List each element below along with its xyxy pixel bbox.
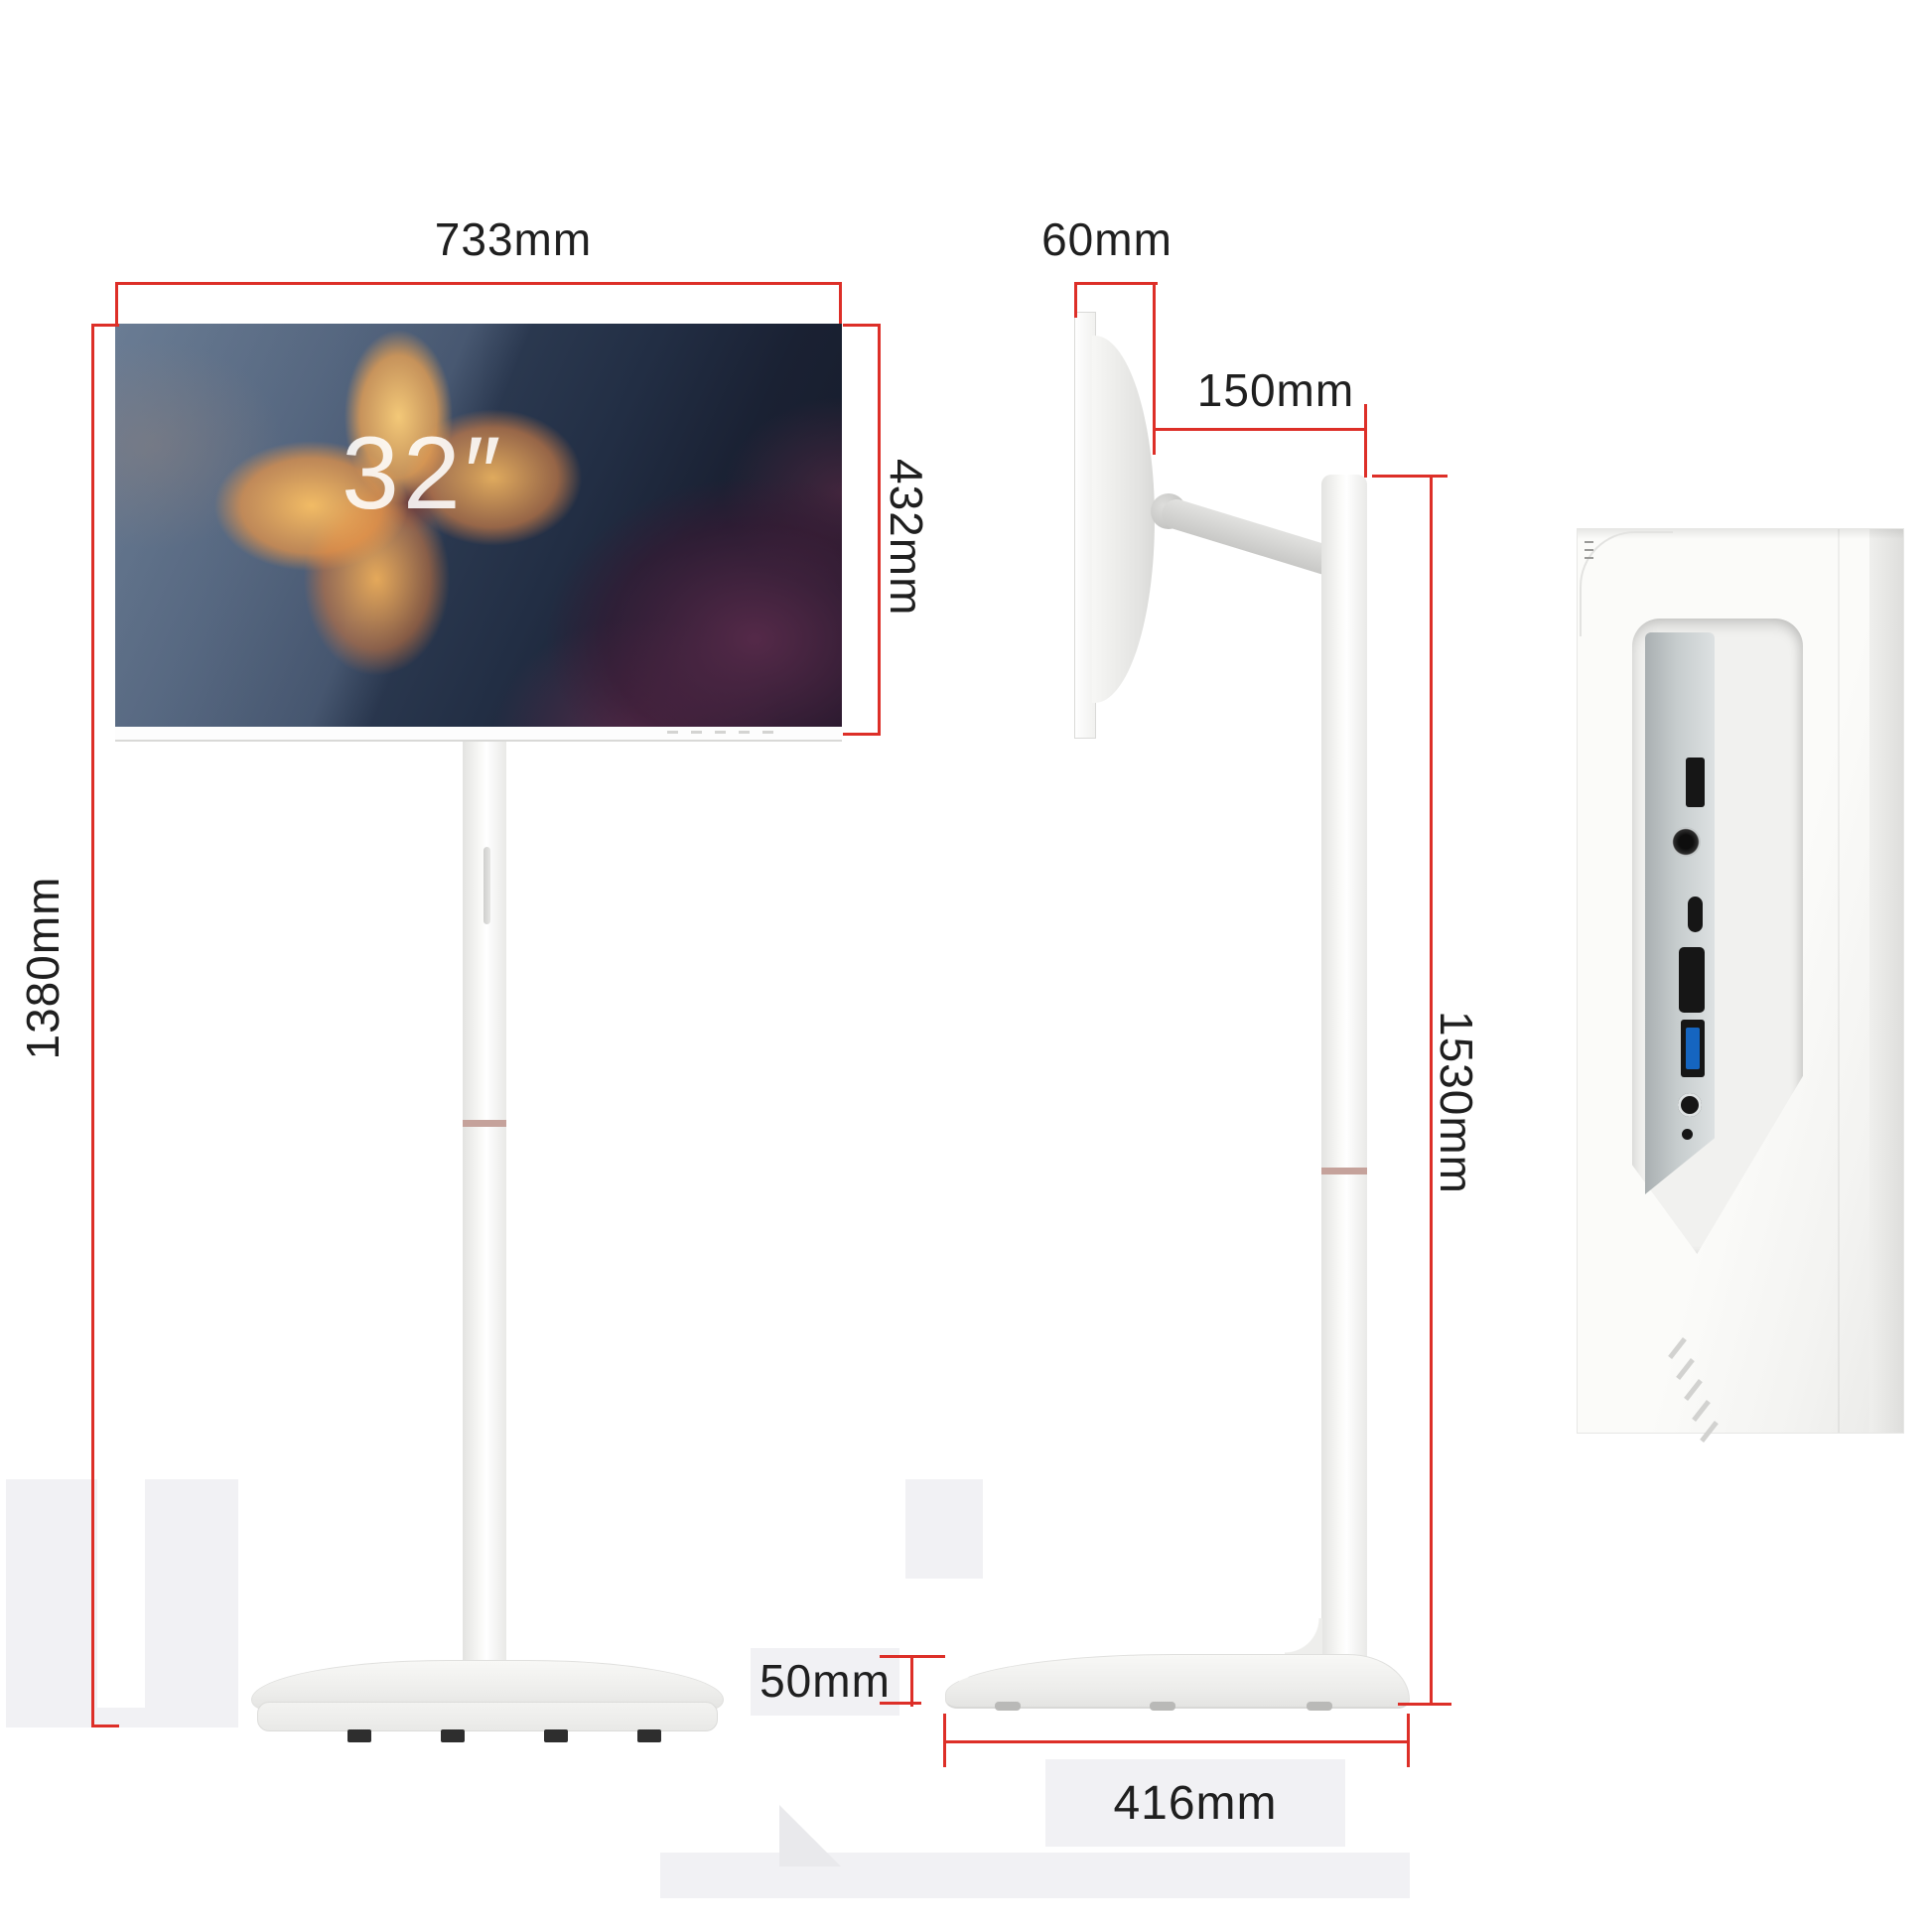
dim-stand-height-line bbox=[1430, 475, 1433, 1706]
background-patch-triangle bbox=[779, 1805, 841, 1866]
dim-front-total-height-label: 1380mm bbox=[16, 839, 68, 1097]
background-patch-notch bbox=[97, 1479, 145, 1708]
background-patch bbox=[660, 1853, 1410, 1898]
dim-base-depth-line bbox=[943, 1740, 1410, 1743]
dim-front-screen-height-line bbox=[878, 324, 881, 736]
dim-tick bbox=[91, 1725, 119, 1727]
reset-hole bbox=[1682, 1129, 1693, 1140]
rear-port-panel-photo bbox=[1577, 528, 1904, 1434]
vent-slot bbox=[1668, 1337, 1687, 1359]
usb-port bbox=[1686, 758, 1705, 807]
usb-c-port bbox=[1688, 897, 1703, 932]
panel-side-edge bbox=[1869, 529, 1903, 1433]
dim-stand-height-label: 1530mm bbox=[1432, 986, 1483, 1219]
vent-slot bbox=[1684, 1379, 1703, 1401]
dim-tick bbox=[880, 1702, 921, 1705]
front-base-foot bbox=[347, 1729, 371, 1742]
dim-side-depth-line bbox=[1074, 282, 1158, 285]
dim-tick bbox=[115, 282, 118, 324]
side-screen-back bbox=[1092, 336, 1155, 703]
side-base bbox=[945, 1654, 1410, 1709]
dim-tick bbox=[91, 324, 119, 327]
dim-front-total-height-line bbox=[91, 324, 94, 1727]
dim-tick bbox=[1074, 282, 1077, 318]
dim-tick bbox=[1372, 475, 1448, 478]
vent-slot bbox=[1692, 1400, 1711, 1422]
dim-side-depth-label: 60mm bbox=[1008, 212, 1206, 266]
panel-label-mark bbox=[1585, 541, 1593, 543]
dim-front-width-label: 733mm bbox=[345, 212, 682, 266]
dim-tick bbox=[943, 1714, 946, 1767]
front-pole-ring bbox=[463, 1120, 506, 1127]
dim-tick bbox=[1364, 404, 1367, 478]
dim-tick bbox=[843, 733, 881, 736]
screen-size-label: 32″ bbox=[342, 415, 620, 533]
dim-tick bbox=[839, 282, 842, 324]
bezel-button bbox=[762, 731, 773, 734]
dim-base-height-label: 50mm bbox=[751, 1654, 899, 1708]
product-dimension-diagram: 32″ 733mm 1380mm bbox=[0, 0, 1932, 1932]
side-pole bbox=[1321, 475, 1367, 1668]
background-patch bbox=[905, 1479, 983, 1579]
dim-tick bbox=[1407, 1714, 1410, 1767]
dim-tick bbox=[843, 324, 881, 327]
usb3-port-tongue bbox=[1686, 1028, 1700, 1069]
bezel-button bbox=[739, 731, 750, 734]
dim-arm-offset-line bbox=[1155, 428, 1367, 431]
panel-edge-line bbox=[1838, 529, 1840, 1433]
bezel-button bbox=[691, 731, 702, 734]
panel-label-mark bbox=[1585, 557, 1593, 559]
dim-base-depth-label: 416mm bbox=[1045, 1777, 1345, 1831]
front-bezel bbox=[115, 727, 842, 742]
dim-front-width-line bbox=[115, 282, 842, 285]
dim-base-height-line bbox=[910, 1655, 913, 1707]
hdmi-port bbox=[1679, 947, 1705, 1013]
side-base-foot bbox=[1307, 1702, 1332, 1711]
side-base-foot bbox=[1150, 1702, 1175, 1711]
side-arm bbox=[1158, 495, 1343, 578]
dim-arm-offset-label: 150mm bbox=[1167, 363, 1385, 417]
front-base-foot bbox=[441, 1729, 465, 1742]
front-pole-slot bbox=[483, 847, 490, 924]
dim-tick bbox=[1398, 1703, 1451, 1706]
vent-slot bbox=[1676, 1358, 1695, 1380]
front-base-foot bbox=[544, 1729, 568, 1742]
dc-in-jack bbox=[1671, 827, 1701, 857]
front-base-rim bbox=[257, 1702, 718, 1731]
bezel-button bbox=[715, 731, 726, 734]
audio-jack bbox=[1678, 1093, 1702, 1117]
panel-label-mark bbox=[1585, 549, 1593, 551]
bezel-button bbox=[667, 731, 678, 734]
dim-front-screen-height-label: 432mm bbox=[884, 421, 933, 654]
screen-wallpaper-flower: 32″ bbox=[115, 324, 842, 729]
front-base-foot bbox=[637, 1729, 661, 1742]
side-base-foot bbox=[995, 1702, 1021, 1711]
vent-slot bbox=[1700, 1421, 1719, 1443]
side-pole-ring bbox=[1321, 1168, 1367, 1174]
front-screen: 32″ bbox=[115, 324, 842, 742]
